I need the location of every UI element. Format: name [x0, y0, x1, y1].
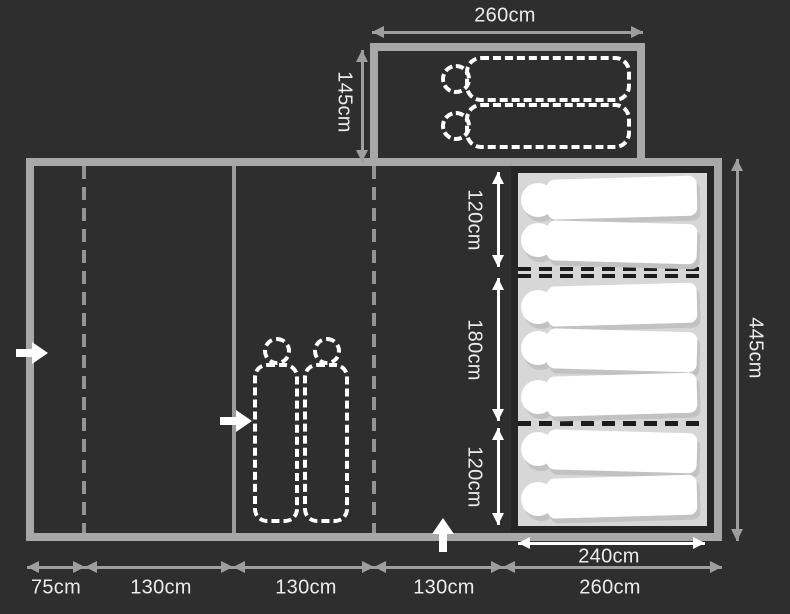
- sleeper-body: [465, 103, 631, 149]
- sleeping-bag-icon: [520, 327, 699, 374]
- sleeping-bag-icon: [520, 219, 699, 266]
- tent-depth-label: 445cm: [744, 317, 767, 379]
- dimension-arrow-bedroom-120b: [497, 428, 500, 525]
- dashed-sleeping-bag-icon: [441, 56, 633, 103]
- bedroom-divider-single-dash: [518, 421, 707, 426]
- tent-floorplan-diagram: 260cm 145cm 445cm 120cm 180cm 120cm 240c…: [0, 0, 790, 614]
- divider-dashed-left: [82, 166, 86, 533]
- dimension-arrow-bedroom-120a: [497, 172, 500, 267]
- bedroom-section2-label: 180cm: [463, 319, 486, 381]
- sleeper-body: [546, 283, 697, 327]
- bottom-dimension-label-260: 260cm: [579, 577, 641, 600]
- annex-width-label: 260cm: [474, 5, 536, 28]
- divider-dashed-right: [372, 166, 376, 533]
- dashed-sleeping-bag-icon: [253, 337, 303, 525]
- dimension-arrow-tent-depth: [736, 159, 739, 541]
- sleeping-bag-icon: [520, 474, 699, 521]
- dimension-arrow-bottom-130a: [85, 566, 233, 569]
- sleeper-body: [546, 429, 697, 473]
- dimension-arrow-bottom-75: [27, 566, 85, 569]
- dimension-arrow-bedroom-180: [497, 278, 500, 421]
- bottom-dimension-label-130b: 130cm: [275, 577, 337, 600]
- dimension-arrow-annex-depth: [361, 50, 364, 162]
- sleeper-head: [263, 337, 291, 365]
- bedroom-section3-label: 120cm: [463, 446, 486, 508]
- sleeper-body: [546, 176, 697, 220]
- bedroom-divider-double-dash-row1: [518, 267, 707, 271]
- sleeper-body: [465, 56, 631, 102]
- bedroom-section1-label: 120cm: [463, 189, 486, 251]
- entrance-arrow-icon: [16, 342, 48, 364]
- entrance-arrow-icon: [220, 410, 252, 432]
- dashed-sleeping-bag-icon: [441, 103, 633, 150]
- sleeping-bag-icon: [520, 175, 699, 222]
- sleeper-body: [303, 363, 349, 523]
- bottom-dimension-label-130a: 130cm: [130, 577, 192, 600]
- sleeping-bag-icon: [520, 372, 699, 419]
- sleeper-body: [546, 373, 697, 417]
- bedroom-divider-double-dash-row2: [518, 274, 707, 278]
- sleeper-body: [253, 363, 299, 523]
- entrance-arrow-icon: [432, 518, 454, 552]
- annex-depth-label: 145cm: [333, 71, 356, 133]
- dimension-arrow-bottom-130b: [233, 566, 374, 569]
- sleeper-body: [546, 220, 697, 264]
- dimension-arrow-annex-width: [372, 31, 643, 34]
- bottom-dimension-label-130c: 130cm: [413, 577, 475, 600]
- sleeper-body: [546, 328, 697, 372]
- sleeper-body: [546, 475, 697, 519]
- bedroom-width-label: 240cm: [578, 546, 640, 569]
- divider-solid-middle: [232, 166, 236, 533]
- dashed-sleeping-bag-icon: [303, 337, 353, 525]
- dimension-arrow-bottom-130c: [374, 566, 503, 569]
- sleeping-bag-icon: [520, 282, 699, 329]
- sleeping-bag-icon: [520, 428, 699, 475]
- bottom-dimension-label-75: 75cm: [31, 577, 81, 600]
- sleeper-head: [313, 337, 341, 365]
